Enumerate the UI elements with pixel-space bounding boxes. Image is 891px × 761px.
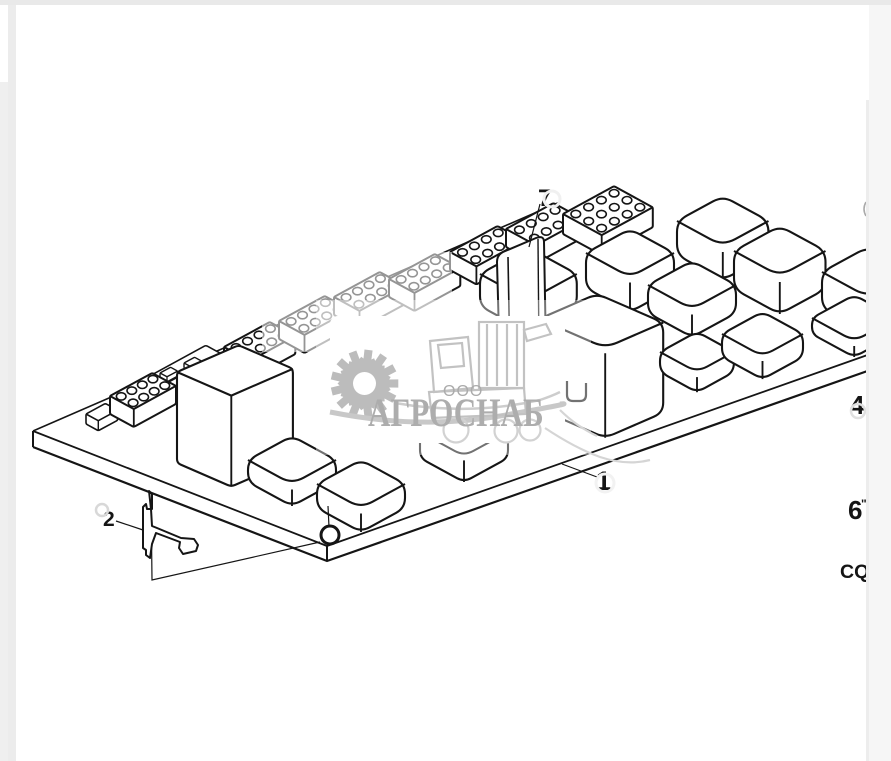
svg-text:CQ: CQ	[840, 561, 869, 583]
svg-text:АГРОСНАБ: АГРОСНАБ	[368, 390, 544, 435]
